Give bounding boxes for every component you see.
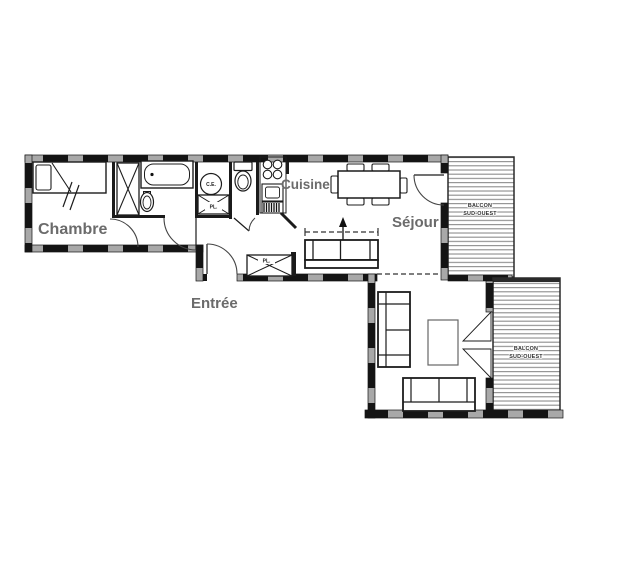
balcony-upper-label-line1: BALCON (468, 203, 492, 209)
kitchen-sink (262, 184, 283, 201)
floor-plan: BALCON SUD-OUEST BALCON SUD-OUEST (0, 0, 633, 580)
hob-burner (273, 160, 282, 169)
closet-bathroom: PL. (198, 195, 229, 214)
balcony-upper: BALCON SUD-OUEST (448, 157, 514, 281)
label-chambre: Chambre (38, 221, 107, 238)
sofa-bed-seat (305, 240, 378, 260)
closet-entree: PL. (247, 255, 292, 276)
window-leaf-balcony-living-top (463, 312, 491, 341)
hob-burner (263, 170, 272, 179)
partition (112, 162, 115, 218)
bathtub-drain (150, 173, 153, 176)
sofa-bed-base (305, 260, 378, 268)
balcony-lower: BALCON SUD-OUEST (493, 278, 560, 414)
wall-segment (25, 245, 203, 252)
washbasin (141, 192, 154, 212)
kitchen-appliance (262, 202, 283, 213)
arrow-head (339, 217, 347, 227)
kitchen-hob (263, 160, 282, 179)
wardrobe-chambre (117, 163, 139, 215)
dining-chair (347, 198, 364, 205)
dining-chair (372, 164, 389, 171)
door-leaf-wc (234, 218, 249, 231)
bed-pillow (36, 165, 51, 190)
wall-segment (441, 203, 448, 280)
balcony-lower-label-line1: BALCON (514, 346, 538, 352)
dining-chair (331, 176, 338, 193)
toilet (234, 162, 252, 191)
closet-bathroom-label: PL. (210, 205, 218, 211)
door-arc-wc (249, 218, 255, 231)
wall-segment (486, 281, 493, 312)
closet-entree-label: PL. (263, 259, 271, 265)
living-sofa-horizontal (403, 378, 475, 411)
hob-burner (263, 160, 272, 169)
balcony-lower-sill (493, 278, 560, 282)
dining-table (338, 171, 400, 198)
label-cuisine: Cuisine (281, 177, 330, 192)
wall-segment (196, 245, 203, 281)
living-furniture (378, 292, 475, 411)
label-sejour: Séjour (392, 214, 439, 231)
wall-segment (203, 274, 207, 281)
living-sofa-vertical (378, 292, 410, 367)
wall-segment (25, 155, 448, 162)
balcony-lower-label-line2: SUD-OUEST (509, 354, 543, 360)
coffee-table (428, 320, 458, 365)
toilet-tank (234, 162, 252, 171)
partition (256, 162, 259, 215)
water-heater-label: C.E. (206, 182, 216, 188)
balcony-upper-deck (448, 157, 514, 277)
dining-set (331, 164, 407, 205)
dining-chair (372, 198, 389, 205)
window-leaf-balcony-living-bottom (463, 349, 491, 378)
door-arc-chambre (110, 219, 138, 247)
dining-chair (347, 164, 364, 171)
partition-diagonal (281, 213, 296, 228)
floor-plan-page: BALCON SUD-OUEST BALCON SUD-OUEST (0, 0, 633, 580)
door-arc-entrance (207, 244, 237, 274)
bedroom-furniture (33, 162, 139, 215)
door-arc-balcony-sejour (414, 175, 444, 205)
water-heater: C.E. (201, 174, 222, 195)
sofa-bed-arrow (339, 217, 347, 241)
balcony-upper-label-line2: SUD-OUEST (463, 211, 497, 217)
appliance-box (262, 202, 283, 213)
sofa-bed (305, 240, 378, 268)
wall-segment (486, 378, 493, 411)
partition (195, 215, 232, 218)
wall-segment (441, 155, 448, 173)
bathtub (141, 161, 193, 188)
wall-segment (25, 155, 32, 252)
wall-segment (368, 274, 375, 418)
dining-chair (400, 178, 407, 193)
label-entree: Entrée (191, 295, 238, 312)
